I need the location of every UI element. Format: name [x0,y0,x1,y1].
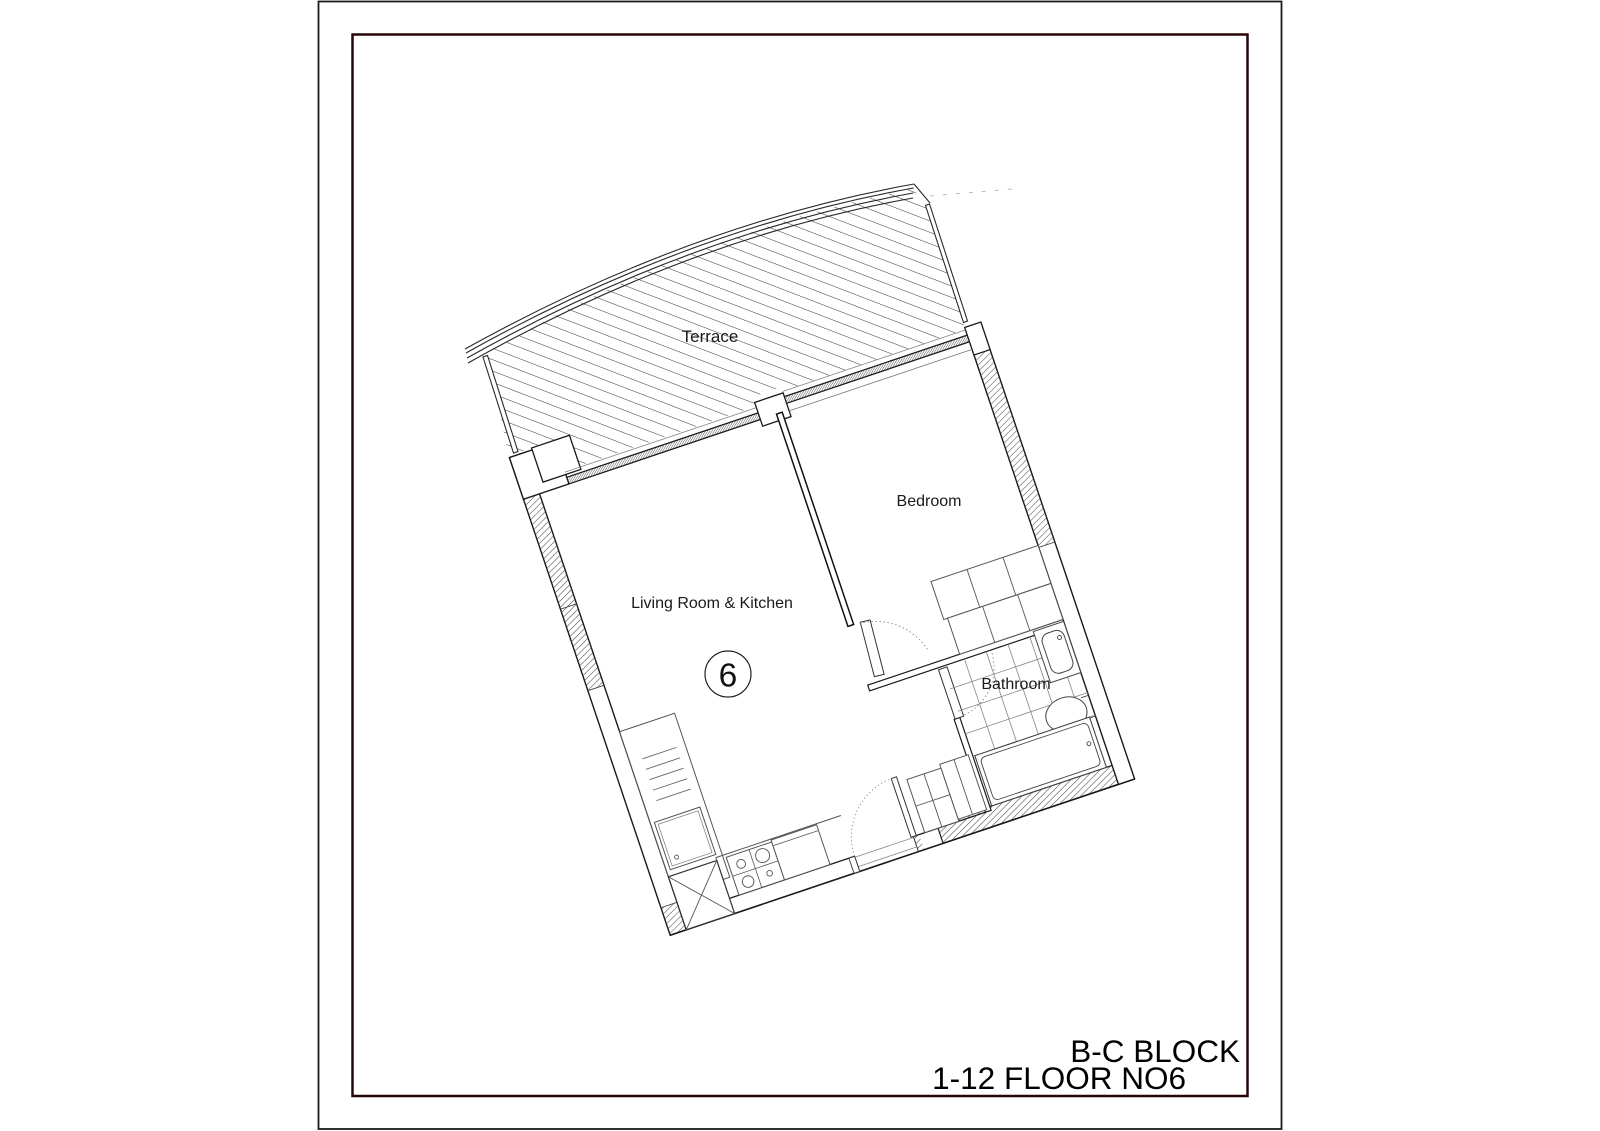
svg-text:Terrace: Terrace [682,327,739,346]
svg-text:Bedroom: Bedroom [897,493,962,510]
svg-text:6: 6 [719,658,738,695]
svg-text:Bathroom: Bathroom [981,676,1050,693]
svg-text:1-12 FLOOR NO6: 1-12 FLOOR NO6 [932,1060,1186,1096]
svg-text:Living Room & Kitchen: Living Room & Kitchen [631,595,793,612]
